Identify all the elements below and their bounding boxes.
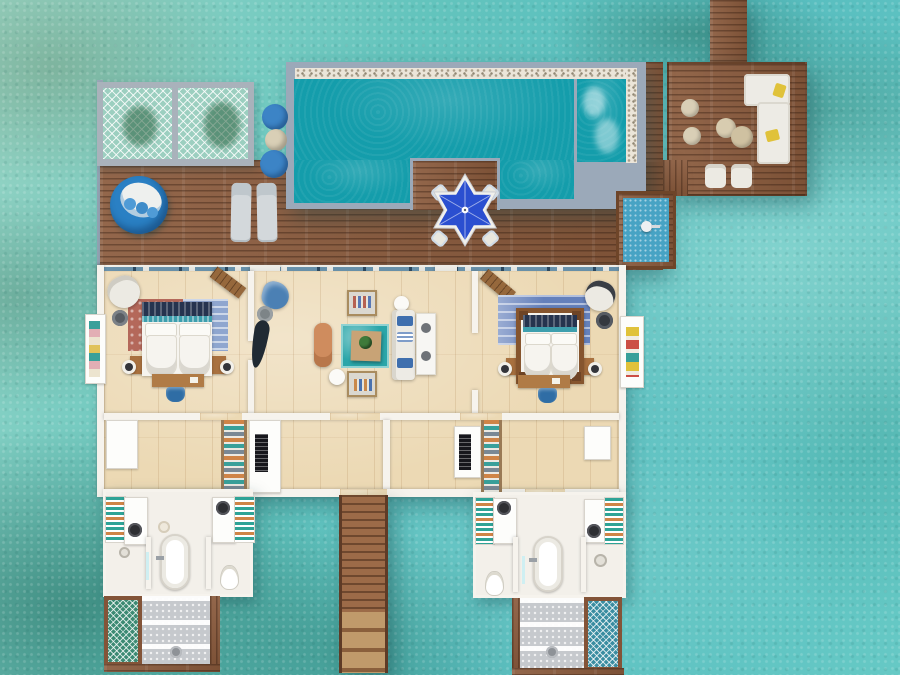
table-lamp: [588, 362, 602, 376]
living-armchair-bottom: [347, 371, 377, 397]
toilet: [220, 565, 239, 590]
bath-tray: [158, 521, 170, 533]
wall-bedroom-right-divider: [472, 271, 478, 333]
patterned-cushion: [353, 296, 371, 308]
sun-lounger: [256, 183, 277, 242]
shower-deck-edge: [104, 664, 220, 672]
living-armchair-top: [347, 290, 377, 316]
door-opening: [330, 413, 380, 420]
bed-left: [142, 302, 212, 376]
side-table: [112, 310, 128, 326]
jacuzzi-jets-foam: [595, 119, 619, 153]
rain-shower-left: [142, 596, 210, 670]
desk-paper: [190, 377, 198, 383]
shower-deck-edge: [512, 598, 520, 675]
wall-bathroom-stub: [513, 537, 518, 592]
vanity-basin: [128, 523, 142, 537]
bed-runner: [142, 316, 212, 322]
wall-bedroom-right-divider: [472, 390, 478, 413]
side-table: [596, 312, 613, 329]
sea-steps: [342, 612, 385, 673]
vanity-basin: [587, 524, 601, 538]
pebble-border-right: [626, 68, 637, 163]
open-closet-clothes: [481, 420, 502, 492]
door-opening: [200, 413, 242, 420]
wall-bathroom-stub: [206, 537, 211, 589]
jacuzzi: [577, 79, 626, 162]
catch-net-left: [104, 596, 142, 666]
bathtub: [533, 536, 563, 592]
door-opening: [460, 413, 502, 420]
daybed-pillow: [147, 207, 158, 218]
headboard: [142, 302, 212, 316]
jacuzzi-jets-foam: [583, 87, 605, 117]
shower-arm: [651, 225, 660, 228]
shower-drain: [170, 646, 182, 658]
sofa-pillow: [397, 316, 413, 326]
sun-lounger: [230, 183, 251, 242]
deck-armchair: [731, 164, 752, 188]
writing-desk: [518, 375, 570, 388]
side-table-round: [394, 296, 409, 311]
towel-shelf: [105, 496, 126, 543]
glass-door: [522, 556, 525, 584]
coffee-table: [416, 313, 436, 375]
bed-runner: [523, 327, 577, 332]
shower-drain: [546, 646, 558, 658]
wall-corridor: [383, 420, 390, 490]
striped-bench-cushion: [626, 327, 639, 377]
sofa-pillow: [397, 358, 413, 368]
shower-deck-edge: [512, 668, 624, 675]
wall-bathroom-stub: [581, 537, 586, 592]
floor-plan: [0, 0, 900, 675]
catch-net-right: [584, 597, 622, 671]
round-pouf: [681, 99, 699, 117]
tub-faucet: [529, 558, 537, 562]
ottoman-pouf-blue: [262, 104, 288, 130]
wardrobe: [584, 426, 611, 460]
wardrobe: [106, 420, 138, 469]
swimming-pool-lower-right: [498, 160, 574, 199]
round-daybed: [110, 176, 168, 234]
duvet: [179, 335, 210, 377]
hammock-net-panel: [103, 88, 172, 159]
ottoman-pouf-blue: [260, 150, 288, 178]
chaise-lounge: [314, 323, 332, 367]
ac-vent: [459, 434, 471, 470]
tree-shadow: [123, 106, 157, 146]
vanity-basin: [497, 501, 511, 515]
striped-bench-cushion: [89, 321, 100, 377]
table-lamp: [220, 360, 234, 374]
table-tray: [421, 323, 431, 333]
table-lamp: [122, 360, 136, 374]
towel-shelf: [234, 496, 255, 543]
wall-bedroom-left-divider: [248, 360, 254, 413]
desk-paper: [552, 378, 560, 384]
table-plant: [359, 336, 372, 349]
tree-shadow: [204, 102, 240, 148]
open-closet-clothes: [221, 420, 247, 491]
towel-shelf: [604, 497, 624, 545]
patterned-cushion: [354, 379, 372, 391]
hammock-net-panel: [178, 88, 248, 159]
desk-stool: [166, 387, 185, 402]
glass-door: [146, 552, 149, 580]
pebble-border-top: [295, 68, 637, 79]
round-pouf: [683, 127, 701, 145]
vanity-counter: [124, 497, 148, 545]
shower-drain: [119, 547, 130, 558]
balcony-nook-right: [620, 316, 644, 388]
swimming-pool: [294, 79, 574, 162]
dining-umbrella: [427, 172, 503, 248]
wash-basin-round: [594, 554, 607, 567]
round-coffee-table: [731, 126, 753, 148]
toilet: [485, 571, 504, 596]
daybed-cushion: [116, 177, 166, 222]
desk-stool: [538, 388, 557, 403]
vanity-basin: [216, 501, 230, 515]
rain-shower-right: [520, 598, 584, 670]
tub-faucet: [156, 556, 164, 560]
balcony-nook-left: [85, 314, 106, 384]
ac-vent: [255, 434, 268, 472]
ottoman-pouf-beige: [265, 129, 287, 151]
headboard: [523, 315, 577, 327]
daybed-pillow: [124, 198, 136, 210]
jetty-walkway: [710, 0, 747, 66]
duvet: [146, 335, 177, 377]
swimming-pool-lower-left: [294, 160, 412, 203]
table-tray: [421, 351, 431, 361]
shower-deck-edge: [210, 596, 220, 670]
table-lamp: [498, 362, 512, 376]
side-table-round: [329, 369, 345, 385]
towel-shelf: [475, 497, 495, 545]
bathtub: [160, 534, 190, 590]
living-sofa: [392, 310, 415, 380]
sofa-pillow: [397, 332, 413, 342]
four-poster-bed: [516, 308, 584, 384]
deck-armchair: [705, 164, 726, 188]
